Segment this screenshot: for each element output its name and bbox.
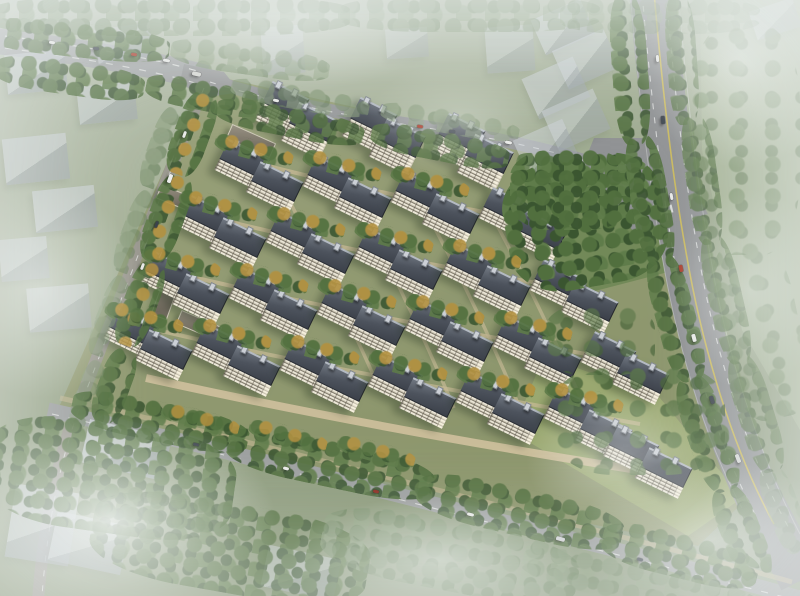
- building-roof: [353, 305, 406, 346]
- building-roof: [585, 331, 636, 371]
- tree-cluster: [620, 133, 680, 268]
- building-facade: [473, 285, 522, 317]
- fog-patch: [640, 150, 800, 430]
- tree-cluster: [169, 34, 332, 86]
- vehicle: [679, 264, 684, 272]
- building-roof: [446, 243, 497, 283]
- apartment-building: [314, 283, 409, 357]
- building-facade: [441, 263, 488, 294]
- context-building-block: [260, 545, 341, 596]
- building-facade: [524, 357, 573, 389]
- building-facade: [103, 327, 150, 358]
- apartment-building: [263, 211, 358, 285]
- building-facade: [140, 271, 187, 302]
- road: [490, 212, 600, 442]
- building-roof: [492, 393, 545, 434]
- building-facade: [209, 237, 258, 269]
- building-wing: [135, 329, 193, 381]
- vehicle: [504, 140, 511, 144]
- context-building-block: [484, 24, 535, 73]
- road: [654, 0, 774, 524]
- building-roof: [219, 139, 270, 179]
- context-building-block: [5, 483, 80, 566]
- vehicle: [466, 512, 474, 517]
- building-facade: [311, 381, 360, 413]
- building-roof: [358, 227, 409, 267]
- fog-patch: [490, 360, 750, 560]
- building-roof: [497, 315, 548, 355]
- tree-cluster: [597, 515, 763, 596]
- building-wing: [441, 243, 498, 294]
- apartment-building: [388, 171, 483, 245]
- road: [164, 270, 620, 360]
- building-facade: [348, 325, 397, 357]
- building-wing: [369, 118, 426, 175]
- road: [200, 214, 588, 292]
- building-wing: [177, 195, 234, 246]
- vehicle: [373, 489, 380, 493]
- apartment-building: [339, 97, 429, 175]
- fog-patch: [600, 0, 800, 210]
- road: [198, 76, 622, 172]
- context-building-block: [94, 22, 154, 63]
- context-building-block: [2, 133, 70, 185]
- apartment-buildings-layer: [0, 0, 800, 596]
- vehicle: [555, 536, 565, 542]
- building-roof: [228, 345, 281, 386]
- building-facade: [603, 445, 650, 476]
- context-building-block: [513, 119, 579, 179]
- building-facade: [510, 229, 559, 261]
- apartment-building: [541, 387, 636, 461]
- tree-cluster: [316, 497, 585, 596]
- vehicle: [283, 466, 290, 470]
- atmosphere-vignette: [0, 0, 800, 596]
- tree-cluster: [83, 272, 136, 360]
- tree-cluster: [213, 130, 295, 170]
- context-building-block: [32, 185, 98, 233]
- tree-cluster: [495, 144, 675, 300]
- building-facade: [302, 175, 349, 206]
- building-roof: [548, 387, 599, 427]
- building-facade: [297, 253, 346, 285]
- tree-cluster: [404, 290, 486, 330]
- apartment-building: [226, 267, 321, 341]
- ground-area: [512, 150, 668, 298]
- building-facade: [404, 319, 451, 350]
- building-wing: [209, 217, 267, 269]
- building-wing: [367, 355, 424, 406]
- apartment-building: [439, 243, 534, 317]
- building-wing: [492, 315, 549, 366]
- tree-cluster: [279, 330, 361, 370]
- building-facade: [390, 191, 437, 222]
- building-roof: [140, 329, 193, 370]
- context-building-block: [521, 57, 590, 120]
- building-roof: [321, 283, 372, 323]
- fog-patch: [330, 40, 590, 200]
- building-wing: [228, 267, 285, 318]
- tree-cluster: [368, 118, 511, 174]
- building-wing: [353, 227, 410, 278]
- tree-cluster: [669, 370, 748, 497]
- building-wing: [311, 361, 369, 413]
- building-wing: [510, 209, 568, 261]
- tree-cluster: [247, 416, 329, 456]
- building-roof: [617, 353, 670, 394]
- building-wing: [455, 371, 512, 422]
- vehicle: [449, 129, 455, 133]
- building-facade: [369, 139, 416, 175]
- context-building-block: [48, 511, 131, 575]
- building-wing: [430, 113, 486, 170]
- building-roof: [427, 193, 480, 234]
- building-facade: [612, 373, 661, 405]
- road: [38, 82, 206, 596]
- building-roof: [460, 371, 511, 411]
- building-roof: [350, 97, 397, 137]
- building-wing: [140, 251, 197, 302]
- building-roof: [372, 355, 423, 395]
- building-roof: [284, 339, 335, 379]
- tree-cluster: [677, 113, 727, 246]
- road: [238, 158, 560, 226]
- vehicle: [181, 130, 186, 138]
- building-wing: [265, 211, 322, 262]
- context-buildings-layer: [0, 0, 800, 596]
- context-building-block: [531, 0, 596, 55]
- building-roof: [438, 113, 485, 153]
- ground-area: [180, 64, 240, 98]
- building-wing: [279, 339, 336, 390]
- tree-cluster: [103, 298, 185, 338]
- tree-cluster: [140, 242, 222, 282]
- retail-podium: [156, 184, 202, 214]
- apartment-building: [277, 339, 372, 413]
- building-wing: [281, 102, 338, 159]
- apartment-building: [578, 331, 673, 405]
- tree-cluster: [412, 465, 627, 559]
- building-facade: [135, 349, 184, 381]
- building-roof: [251, 161, 304, 202]
- building-wing: [529, 259, 586, 310]
- road: [414, 190, 528, 428]
- building-facade: [635, 467, 684, 499]
- apartment-building: [212, 139, 307, 213]
- building-wing: [487, 393, 545, 445]
- apartment-building: [300, 155, 395, 229]
- building-facade: [543, 407, 590, 438]
- fog-patch: [0, 140, 180, 440]
- tree-cluster: [177, 186, 259, 226]
- building-wing: [172, 273, 230, 325]
- road: [60, 398, 792, 582]
- apartment-building: [251, 81, 341, 159]
- building-roof: [377, 118, 426, 158]
- tree-cluster: [560, 0, 760, 34]
- building-facade: [455, 391, 502, 422]
- tree-cluster: [65, 357, 111, 431]
- building-roof: [529, 337, 582, 378]
- context-building-block: [80, 419, 172, 481]
- context-building-block: [385, 27, 429, 60]
- vehicle: [49, 40, 55, 44]
- building-wing: [612, 353, 670, 405]
- building-roof: [409, 299, 460, 339]
- building-wing: [404, 299, 461, 350]
- apartment-building: [527, 259, 622, 333]
- building-roof: [265, 289, 318, 330]
- road: [0, 40, 206, 78]
- tree-cluster: [0, 13, 171, 67]
- context-building-block: [76, 81, 138, 125]
- apartment-building: [365, 355, 460, 429]
- building-roof: [316, 361, 369, 402]
- building-wing: [390, 171, 447, 222]
- tree-cluster: [84, 479, 375, 596]
- context-building-block: [4, 49, 68, 95]
- fog-patch: [230, 470, 650, 596]
- podium-shops-layer: [0, 0, 800, 596]
- tree-cluster: [754, 462, 800, 558]
- tree-cluster: [518, 539, 761, 596]
- road: [146, 378, 650, 472]
- building-wing: [580, 331, 637, 382]
- apartment-building: [601, 425, 696, 499]
- tree-cluster: [513, 148, 607, 196]
- tree-cluster: [223, 420, 438, 509]
- building-facade: [367, 375, 414, 406]
- building-wing: [214, 139, 271, 190]
- building-roof: [640, 447, 693, 488]
- building-wing: [223, 345, 281, 397]
- tree-cluster: [160, 87, 223, 180]
- building-wing: [302, 155, 359, 206]
- tree-cluster: [0, 51, 147, 106]
- building-facade: [223, 365, 272, 397]
- context-building-block: [748, 0, 800, 40]
- context-building-block: [26, 283, 92, 332]
- road: [630, 0, 742, 508]
- ground-plane: [0, 0, 800, 596]
- tree-cluster: [389, 162, 471, 202]
- building-facade: [430, 135, 475, 170]
- apartment-building: [402, 299, 497, 373]
- building-roof: [404, 377, 457, 418]
- building-roof: [580, 409, 633, 450]
- building-facade: [177, 215, 224, 246]
- road-marking: [640, 208, 674, 216]
- road-marking: [642, 0, 756, 516]
- tree-cluster: [721, 351, 791, 476]
- building-facade: [385, 269, 434, 301]
- building-roof: [214, 217, 267, 258]
- tree-cluster: [545, 305, 655, 375]
- building-roof: [177, 273, 230, 314]
- building-facade: [265, 231, 312, 262]
- vehicle: [735, 453, 742, 463]
- road: [262, 148, 380, 390]
- road-marking: [0, 46, 198, 84]
- fog-patch: [0, 370, 340, 596]
- building-facade: [492, 335, 539, 366]
- tree-cluster: [353, 218, 435, 258]
- vehicle: [193, 442, 200, 446]
- apartment-building: [476, 187, 571, 261]
- aerial-rendering-canvas: [0, 0, 800, 596]
- apartment-building: [189, 323, 284, 397]
- road: [48, 410, 800, 596]
- tree-cluster: [607, 0, 653, 146]
- fog-patch: [520, 430, 800, 596]
- building-facade: [422, 213, 471, 245]
- tree-cluster: [695, 233, 757, 367]
- building-wing: [575, 409, 633, 461]
- tree-cluster: [134, 170, 199, 267]
- tree-cluster: [640, 250, 712, 386]
- building-facade: [281, 123, 328, 159]
- retail-podium: [150, 266, 184, 321]
- ground-area: [56, 74, 766, 546]
- vehicle: [93, 46, 99, 50]
- building-wing: [246, 161, 304, 213]
- building-roof: [566, 281, 619, 322]
- building-wing: [561, 281, 619, 333]
- apartment-building: [175, 195, 270, 269]
- ground-area: [512, 356, 742, 536]
- building-roof: [307, 155, 358, 195]
- tree-cluster: [367, 346, 449, 386]
- building-facade: [316, 303, 363, 334]
- building-facade: [334, 197, 383, 229]
- building-wing: [316, 283, 373, 334]
- building-roof: [465, 134, 514, 174]
- road: [132, 324, 640, 424]
- vehicle: [131, 52, 137, 56]
- tree-cluster: [543, 378, 625, 418]
- building-wing: [635, 447, 693, 499]
- road: [652, 0, 800, 580]
- building-wing: [254, 81, 310, 138]
- building-wing: [191, 323, 248, 374]
- apartment-building: [490, 315, 585, 389]
- building-wing: [603, 425, 660, 476]
- building-roof: [608, 425, 659, 465]
- building-facade: [457, 155, 504, 191]
- building-wing: [399, 377, 457, 429]
- building-roof: [478, 265, 531, 306]
- tree-cluster: [455, 362, 537, 402]
- vehicle: [162, 58, 169, 62]
- building-wing: [297, 233, 355, 285]
- vehicle: [139, 262, 144, 270]
- building-roof: [182, 195, 233, 235]
- building-wing: [385, 249, 443, 301]
- road-marking: [42, 88, 204, 596]
- road: [678, 0, 800, 534]
- building-facade: [260, 309, 309, 341]
- tree-cluster: [159, 400, 241, 440]
- road-marking: [52, 414, 796, 596]
- apartment-building: [138, 251, 233, 325]
- building-roof: [395, 171, 446, 211]
- vehicle: [273, 98, 279, 102]
- building-wing: [478, 187, 535, 238]
- tree-cluster: [379, 98, 521, 146]
- vehicle: [655, 54, 658, 61]
- vehicle: [669, 192, 673, 199]
- building-facade: [529, 279, 576, 310]
- building-wing: [524, 337, 582, 389]
- building-facade: [254, 103, 299, 138]
- tree-cluster: [108, 187, 164, 277]
- building-facade: [353, 247, 400, 278]
- building-wing: [473, 265, 531, 317]
- vehicle: [417, 124, 423, 128]
- building-facade: [279, 359, 326, 390]
- trees-layer: [0, 0, 800, 596]
- fog-haze-layer: [0, 0, 800, 596]
- tree-cluster: [316, 274, 398, 314]
- road-marking: [0, 34, 200, 72]
- context-building-block: [552, 28, 620, 89]
- tree-cluster: [510, 150, 630, 230]
- building-roof: [270, 211, 321, 251]
- building-roof: [145, 251, 196, 291]
- tree-cluster: [705, 480, 780, 588]
- ground-area: [700, 0, 800, 430]
- road-marking: [210, 82, 616, 170]
- building-facade: [214, 159, 261, 190]
- tree-cluster: [301, 146, 383, 186]
- tree-cluster: [0, 0, 350, 36]
- fog-patch: [80, 0, 500, 120]
- building-facade: [580, 351, 627, 382]
- retail-podium: [226, 124, 276, 158]
- tree-cluster: [191, 314, 273, 354]
- tree-cluster: [340, 0, 600, 32]
- tree-cluster: [229, 74, 371, 122]
- vehicle: [153, 220, 158, 228]
- ground-area: [582, 138, 708, 232]
- building-wing: [103, 307, 160, 358]
- road: [338, 168, 454, 408]
- context-building-block: [260, 25, 305, 76]
- tree-cluster: [143, 70, 267, 122]
- building-wing: [543, 387, 600, 438]
- tree-cluster: [555, 365, 725, 475]
- building-facade: [191, 343, 238, 374]
- building-wing: [457, 134, 514, 191]
- apartment-building: [101, 307, 196, 381]
- building-roof: [534, 259, 585, 299]
- building-roof: [302, 233, 355, 274]
- vehicle: [691, 334, 696, 343]
- building-wing: [422, 193, 480, 245]
- tree-cluster: [663, 0, 702, 126]
- tree-cluster: [335, 432, 417, 472]
- retail-podium: [176, 310, 222, 341]
- tree-cluster: [690, 25, 800, 255]
- building-facade: [246, 181, 295, 213]
- tree-cluster: [109, 257, 171, 351]
- tree-cluster: [86, 345, 142, 427]
- building-wing: [436, 321, 494, 373]
- building-facade: [172, 293, 221, 325]
- vehicle: [661, 116, 665, 124]
- building-roof: [515, 209, 568, 250]
- vehicle: [709, 396, 715, 405]
